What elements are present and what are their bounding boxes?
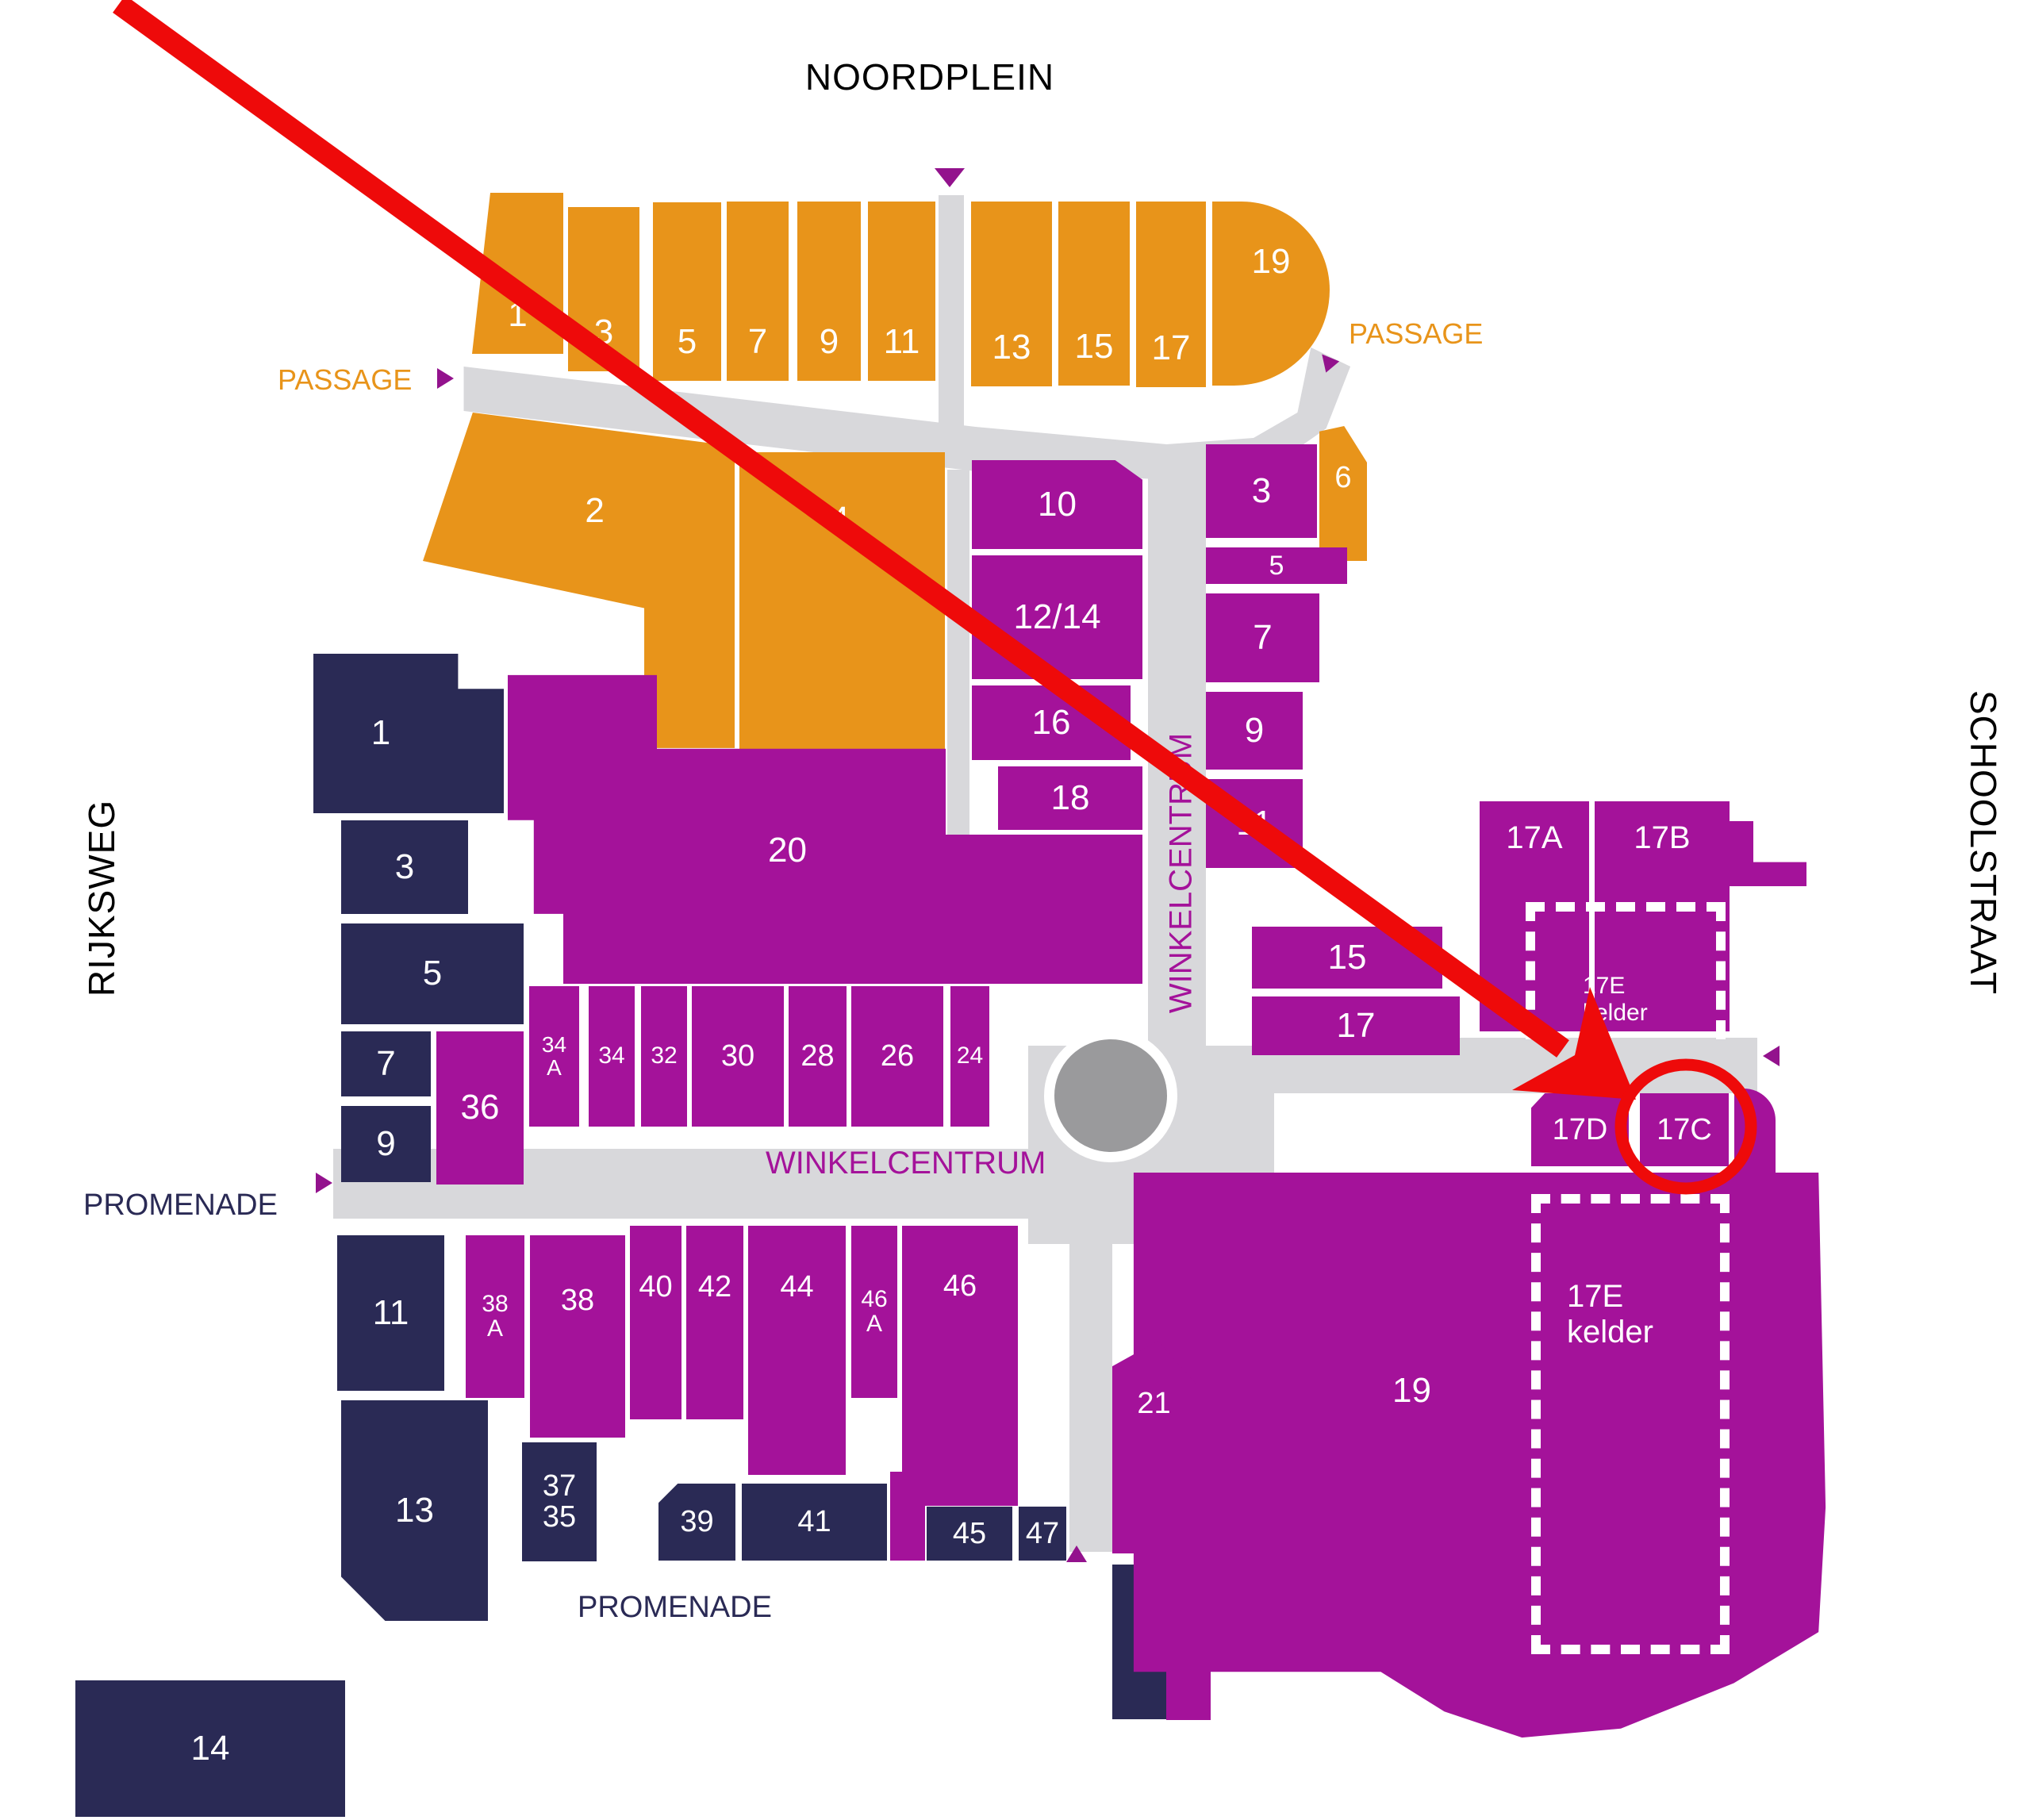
unit-38a: 38A (466, 1235, 524, 1398)
unit-noord-3: 3 (568, 207, 639, 371)
unit-46-leg (890, 1472, 925, 1561)
unit-30: 30 (692, 986, 784, 1127)
unit-17c: 17C (1640, 1093, 1729, 1166)
unit-39: 39 (658, 1484, 735, 1561)
unit-44: 44 (748, 1226, 846, 1475)
unit-42: 42 (686, 1226, 743, 1419)
walkway-promenade-south (1069, 1234, 1112, 1552)
unit-46: 46 (902, 1226, 1018, 1506)
unit-32: 32 (641, 986, 687, 1127)
shopping-centre-map: 1 3 5 7 9 11 13 15 17 19 2 4 6 10 12/14 … (0, 0, 2031, 1820)
unit-40: 40 (630, 1226, 681, 1419)
unit-center-18: 18 (998, 766, 1142, 830)
label-winkelcentrum-vertical: WINKELCENTRUM (1164, 715, 1200, 1032)
unit-46a: 46A (851, 1226, 897, 1398)
unit-west-9: 9 (341, 1106, 431, 1182)
unit-noord-7: 7 (727, 202, 789, 381)
unit-47: 47 (1019, 1507, 1066, 1561)
unit-34a: 34A (529, 986, 579, 1127)
unit-36: 36 (436, 1031, 524, 1185)
unit-24: 24 (950, 986, 989, 1127)
street-schoolstraat: SCHOOLSTRAAT (1962, 684, 2005, 1001)
unit-west-1: 1 (313, 654, 504, 813)
label-passage-left: PASSAGE (278, 363, 412, 397)
unit-noord-13: 13 (971, 202, 1052, 386)
unit-west-11: 11 (337, 1235, 444, 1391)
unit-28: 28 (789, 986, 847, 1127)
unit-49-notch (1166, 1657, 1211, 1720)
unit-center-12-14: 12/14 (972, 555, 1142, 679)
unit-east-11: 11 (1206, 779, 1303, 868)
unit-26: 26 (851, 986, 943, 1127)
entrance-arrow-north-icon (935, 168, 965, 187)
walkway-strip-center (947, 470, 969, 836)
unit-34: 34 (589, 986, 635, 1127)
unit-noord-15: 15 (1058, 202, 1130, 386)
unit-east-7: 7 (1206, 593, 1319, 682)
unit-37-35: 3735 (522, 1442, 597, 1561)
entrance-arrow-east-icon (1763, 1046, 1780, 1066)
unit-east-3: 3 (1206, 444, 1317, 538)
label-passage-right: PASSAGE (1349, 317, 1483, 351)
unit-38: 38 (530, 1235, 625, 1438)
street-rijksweg: RIJKSWEG (80, 739, 123, 1057)
unit-east-9: 9 (1206, 692, 1303, 770)
unit-17d: 17D (1531, 1093, 1629, 1166)
unit-passage-6: 6 (1319, 426, 1367, 561)
label-17e-kelder-upper: 17E kelder (1583, 973, 1648, 1026)
label-winkelcentrum-horizontal: WINKELCENTRUM (766, 1146, 1046, 1181)
unit-45: 45 (927, 1507, 1012, 1561)
unit-west-5: 5 (341, 923, 524, 1024)
unit-west-7: 7 (341, 1031, 431, 1096)
unit-west-3: 3 (341, 820, 468, 914)
unit-west-14: 14 (75, 1680, 345, 1817)
roundabout (1044, 1029, 1177, 1162)
unit-center-16: 16 (972, 685, 1131, 760)
unit-east-15: 15 (1252, 927, 1442, 989)
unit-noord-5: 5 (653, 202, 721, 381)
entrance-arrow-passage-left-icon (437, 368, 454, 389)
unit-east-5: 5 (1206, 547, 1347, 584)
unit-center-10: 10 (972, 460, 1142, 549)
walkway-noordplein-stub (939, 195, 964, 427)
unit-21: 21 (1112, 1341, 1196, 1553)
unit-west-13: 13 (341, 1400, 488, 1621)
unit-passage-4: 4 (739, 452, 945, 763)
street-noordplein: NOORDPLEIN (771, 56, 1088, 98)
unit-41: 41 (742, 1484, 887, 1561)
unit-noord-11: 11 (868, 202, 935, 381)
label-promenade-west: PROMENADE (83, 1188, 278, 1223)
entrance-arrow-promenade-west-icon (316, 1173, 332, 1193)
unit-east-17: 17 (1252, 996, 1460, 1055)
label-promenade-south: PROMENADE (578, 1591, 772, 1625)
kelder-outline-lower (1531, 1194, 1730, 1654)
label-17e-kelder-lower: 17E kelder (1567, 1279, 1653, 1350)
unit-noord-9: 9 (797, 202, 861, 381)
entrance-arrow-promenade-south-icon (1066, 1545, 1087, 1562)
label-19: 19 (1392, 1371, 1431, 1410)
unit-17b-annex (1700, 821, 1806, 886)
unit-17c-east-arm (1734, 1089, 1776, 1176)
unit-noord-17: 17 (1136, 202, 1206, 387)
unit-noord-1: 1 (472, 193, 563, 354)
